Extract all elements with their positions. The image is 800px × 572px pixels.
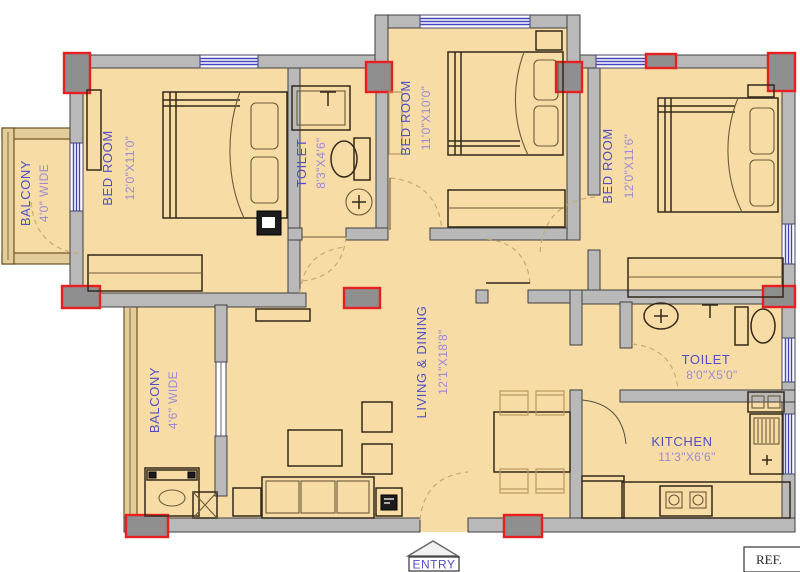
room-size: 11'3"X6'6" [658, 450, 716, 464]
room-label: BED ROOM [100, 130, 115, 206]
room-size: 8'3"X4'6" [314, 137, 328, 188]
room-size: 11'0"X10'0" [419, 86, 433, 151]
room-size: 12'0"X11'0" [123, 136, 137, 201]
room-size: 12'0"X11'6" [622, 134, 636, 199]
room-label: BED ROOM [398, 80, 413, 156]
window [782, 414, 795, 474]
entry-arrow-icon [408, 541, 458, 556]
room-size: 4'0" WIDE [37, 164, 51, 222]
entry-marker: ENTRY [408, 541, 459, 572]
room-size: 8'0"X5'0" [686, 368, 737, 382]
floor-plan-drawing: BED ROOM 12'0"X11'0" TOILET 8'3"X4'6" BE… [0, 0, 800, 572]
window [420, 15, 530, 28]
floor-plan-canvas: BED ROOM 12'0"X11'0" TOILET 8'3"X4'6" BE… [0, 0, 800, 572]
room-label: BALCONY [147, 367, 162, 433]
room-label: BED ROOM [600, 128, 615, 204]
room-label: LIVING & DINING [414, 305, 429, 418]
room-size: 12'1"X18'8" [436, 329, 450, 395]
window [200, 55, 258, 68]
room-label: BALCONY [18, 160, 33, 226]
ref-box: REF. [744, 547, 800, 572]
room-label: TOILET [294, 139, 309, 188]
room-label: TOILET [682, 352, 731, 367]
room-label: KITCHEN [651, 434, 712, 449]
room-size: 4'6" WIDE [166, 371, 180, 429]
bedside-detail [262, 217, 275, 228]
window [782, 224, 795, 264]
window [70, 143, 83, 211]
ref-label: REF. [756, 552, 782, 567]
entry-label: ENTRY [413, 558, 456, 572]
window [782, 338, 795, 382]
